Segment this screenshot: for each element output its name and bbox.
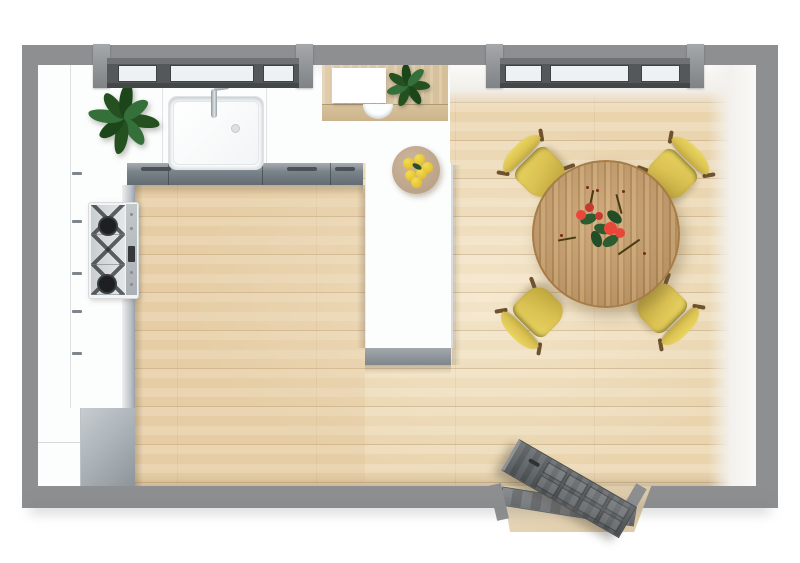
- drawer-handle: [141, 167, 171, 171]
- flower-centerpiece[interactable]: [558, 182, 653, 282]
- desk-plant[interactable]: [386, 62, 432, 106]
- paper-sheet[interactable]: [332, 68, 386, 103]
- faucet-spout: [211, 89, 217, 118]
- peninsula-end-panel: [365, 348, 451, 365]
- window-pane: [505, 65, 542, 82]
- shadow-peninsula-left: [357, 185, 365, 348]
- burner-grate: [91, 235, 125, 265]
- window-frame: [500, 58, 690, 88]
- cabinet-handle: [72, 172, 82, 175]
- stove-display: [128, 246, 135, 262]
- counter-seam: [38, 442, 80, 443]
- cabinet-handle: [72, 310, 82, 313]
- window-pane: [550, 65, 629, 82]
- flower-stem: [615, 194, 622, 214]
- window-pane: [118, 65, 157, 82]
- flower-stem: [618, 239, 640, 256]
- wall-window-right[interactable]: [486, 44, 704, 88]
- floor-plan-canvas: [0, 0, 800, 563]
- door-handle: [528, 458, 540, 467]
- sink-drain: [231, 124, 240, 133]
- cabinet-handle: [72, 220, 82, 223]
- window-pane: [641, 65, 680, 82]
- flower-bloom: [595, 212, 603, 220]
- window-frame: [107, 58, 299, 88]
- window-pane: [170, 65, 254, 82]
- counter-left-lower[interactable]: [38, 408, 80, 486]
- wall-right: [756, 45, 778, 508]
- counter-seam: [70, 65, 71, 408]
- drawer-handle: [287, 167, 317, 171]
- wall-inner-face-right: [708, 65, 758, 486]
- cooktop-surface: [91, 205, 125, 294]
- window-frame-top: [500, 58, 690, 64]
- fruit-plate[interactable]: [392, 146, 440, 194]
- lemon: [411, 177, 422, 188]
- flower-bud: [622, 190, 625, 193]
- stove-cooktop[interactable]: [88, 202, 139, 299]
- flower-bloom: [615, 228, 625, 238]
- burner: [97, 274, 117, 294]
- shadow-peninsula-end: [365, 365, 451, 374]
- window-pane: [263, 65, 294, 82]
- stove-knob: [130, 283, 133, 286]
- shadow-peninsula-right: [452, 165, 461, 365]
- stove-knob: [130, 213, 133, 216]
- burner: [98, 216, 118, 236]
- cabinet-handle: [72, 272, 82, 275]
- plan-drop-shadow: [30, 503, 770, 513]
- kitchen-floor-tint: [135, 185, 365, 486]
- wall-left: [22, 45, 38, 508]
- flower-bud: [560, 234, 563, 237]
- stove-knob: [130, 227, 133, 230]
- window-sill: [500, 83, 690, 88]
- flower-bloom: [576, 210, 586, 220]
- faucet[interactable]: [206, 84, 234, 118]
- base-cabinet-gray[interactable]: [80, 408, 135, 486]
- window-frame-top: [107, 58, 299, 64]
- flower-bud: [596, 189, 599, 192]
- flower-stem: [558, 236, 576, 241]
- shadow-under-cabinets: [135, 185, 363, 195]
- wall-window-left[interactable]: [93, 44, 313, 88]
- cabinet-divider: [330, 163, 331, 185]
- stove-knob: [130, 271, 133, 274]
- flower-bloom: [585, 203, 594, 212]
- flower-bud: [643, 252, 646, 255]
- corner-plant[interactable]: [84, 78, 168, 156]
- flower-bud: [586, 186, 589, 189]
- drawer-handle: [335, 167, 355, 171]
- window-sill: [107, 83, 299, 88]
- cabinet-handle: [72, 352, 82, 355]
